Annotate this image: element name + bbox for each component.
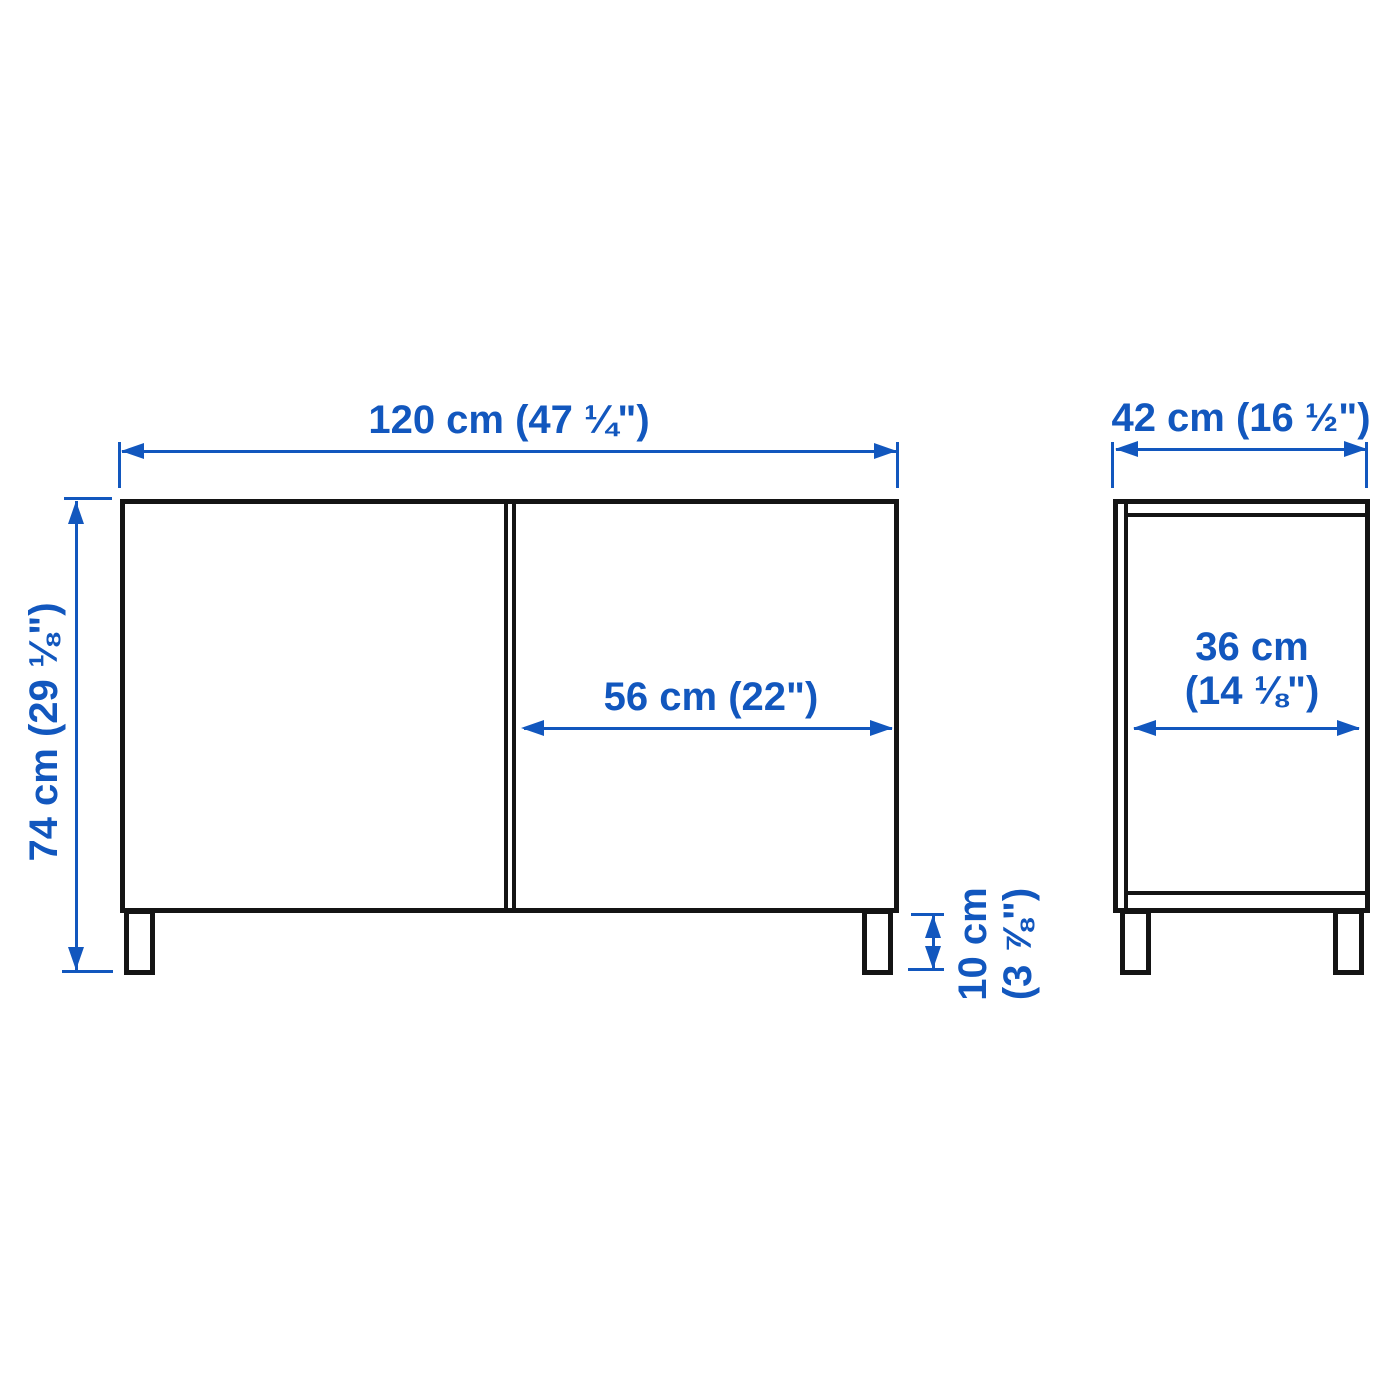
width-dim-arrowhead-right-icon (874, 443, 897, 459)
door-width-dim-label: 56 cm (22") (604, 675, 819, 719)
inner-depth-dim-arrowhead-left-icon (1133, 720, 1156, 736)
depth-dim-tick-left (1111, 442, 1114, 488)
width-dim-line (122, 450, 897, 453)
side-bottom-panel-line (1128, 891, 1365, 895)
door-width-dim-arrowhead-right-icon (870, 720, 893, 736)
height-dim-arrowhead-top-icon (68, 501, 84, 524)
front-door-divider-right-line (512, 503, 516, 909)
height-dim-tick-bottom (62, 970, 113, 973)
leg-height-dim-label: 10 cm (3 ⅞") (951, 887, 1041, 1000)
inner-depth-dim-label-line2: (14 ⅛") (1185, 669, 1320, 713)
height-dim-arrowhead-bottom-icon (68, 947, 84, 970)
width-dim-label: 120 cm (47 ¼") (368, 398, 649, 442)
front-door-divider-left-line (504, 503, 508, 909)
depth-dim-line (1116, 448, 1367, 451)
front-left-leg (124, 909, 155, 975)
inner-depth-dim-line (1134, 727, 1359, 730)
side-right-leg (1333, 909, 1364, 975)
depth-dim-arrowhead-right-icon (1344, 441, 1367, 457)
front-right-leg (862, 909, 893, 975)
inner-depth-dim-label-line1: 36 cm (1185, 625, 1320, 669)
leg-height-dim-label-line1: 10 cm (951, 887, 996, 1000)
door-width-dim-line (524, 727, 892, 730)
leg-height-dim-arrowhead-top-icon (925, 915, 941, 938)
door-width-dim-arrowhead-left-icon (521, 720, 544, 736)
height-dim-line (75, 501, 78, 970)
side-door-panel-line (1124, 503, 1128, 909)
side-left-leg (1120, 909, 1151, 975)
height-dim-tick-top (64, 497, 112, 500)
width-dim-arrowhead-left-icon (121, 443, 144, 459)
inner-depth-dim-arrowhead-right-icon (1337, 720, 1360, 736)
leg-height-dim-label-line2: (3 ⅞") (996, 887, 1041, 1000)
furniture-dimension-diagram: 120 cm (47 ¼") 74 cm (29 ⅛") 56 cm (22")… (0, 0, 1400, 1400)
inner-depth-dim-label: 36 cm (14 ⅛") (1185, 625, 1320, 713)
height-dim-label: 74 cm (29 ⅛") (22, 602, 66, 861)
side-top-panel-line (1128, 513, 1365, 517)
depth-dim-arrowhead-left-icon (1115, 441, 1138, 457)
leg-height-dim-arrowhead-bottom-icon (925, 946, 941, 969)
depth-dim-label: 42 cm (16 ½") (1111, 396, 1370, 440)
